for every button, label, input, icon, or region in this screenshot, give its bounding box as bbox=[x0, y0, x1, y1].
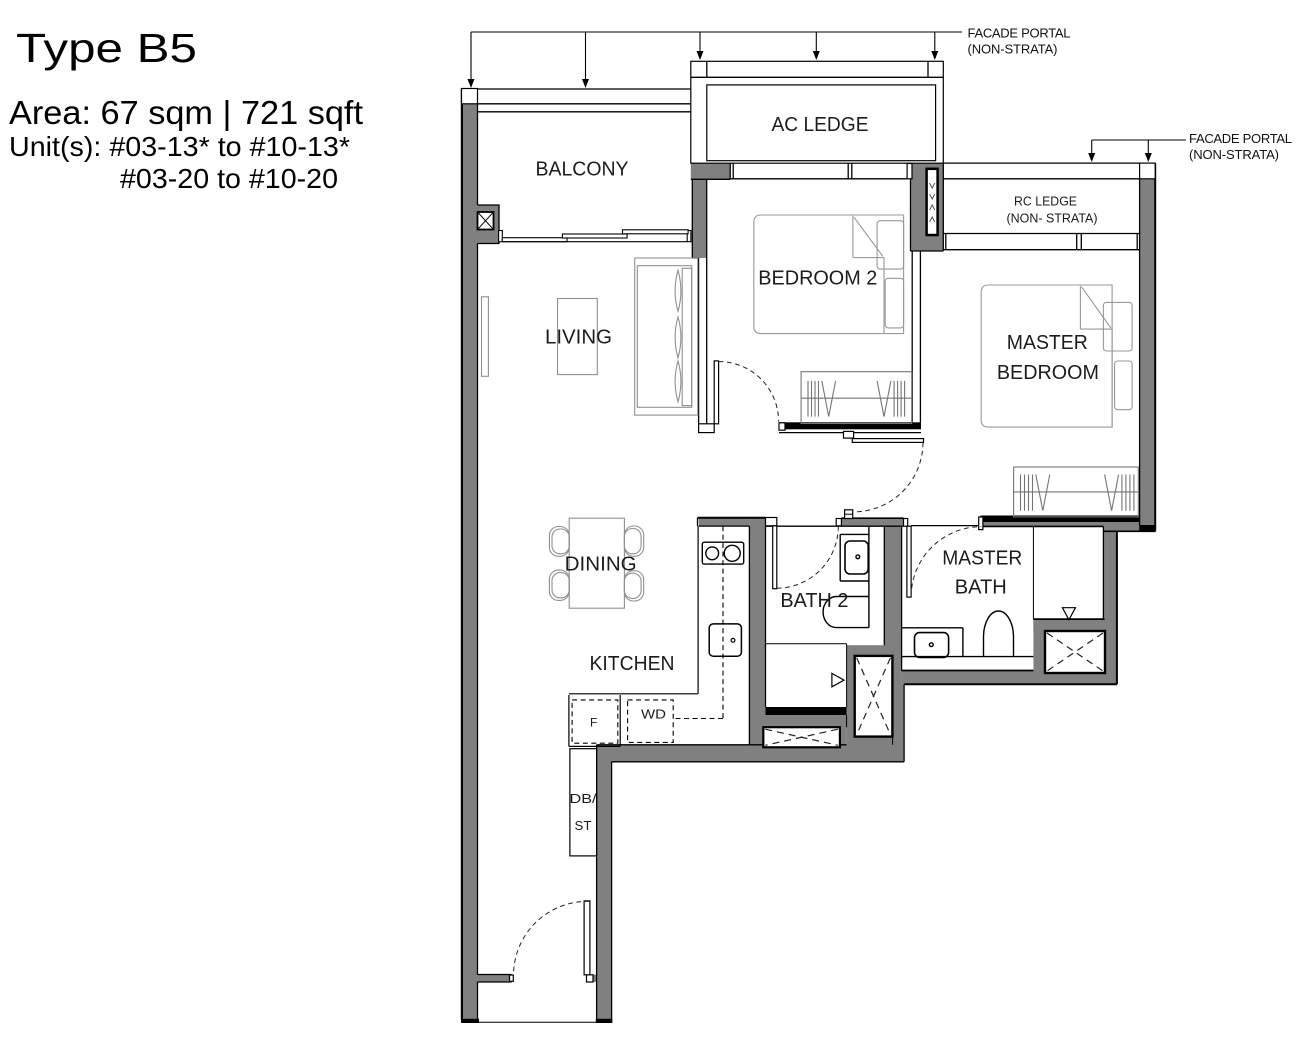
svg-text:(NON- STRATA): (NON- STRATA) bbox=[1007, 212, 1098, 226]
svg-text:DINING: DINING bbox=[565, 554, 637, 576]
svg-text:BEDROOM 2: BEDROOM 2 bbox=[758, 268, 877, 290]
svg-text:RC LEDGE: RC LEDGE bbox=[1014, 195, 1077, 209]
svg-text:BATH 2: BATH 2 bbox=[780, 590, 848, 612]
svg-text:WD: WD bbox=[641, 708, 666, 722]
svg-text:BATH: BATH bbox=[955, 577, 1007, 599]
svg-text:#03-20 to #10-20: #03-20 to #10-20 bbox=[120, 163, 338, 194]
svg-text:DB/: DB/ bbox=[570, 791, 597, 806]
svg-text:BEDROOM: BEDROOM bbox=[997, 362, 1099, 384]
svg-text:Unit(s): #03-13* to #10-13*: Unit(s): #03-13* to #10-13* bbox=[9, 131, 350, 162]
svg-text:BALCONY: BALCONY bbox=[536, 159, 629, 181]
svg-text:AC LEDGE: AC LEDGE bbox=[772, 114, 869, 136]
svg-text:LIVING: LIVING bbox=[545, 327, 612, 349]
svg-text:FACADE PORTAL: FACADE PORTAL bbox=[968, 26, 1071, 41]
svg-text:Area: 67 sqm | 721 sqft: Area: 67 sqm | 721 sqft bbox=[9, 94, 363, 131]
svg-text:(NON-STRATA): (NON-STRATA) bbox=[968, 42, 1058, 57]
svg-text:Type B5: Type B5 bbox=[16, 25, 197, 71]
svg-text:FACADE PORTAL: FACADE PORTAL bbox=[1189, 131, 1292, 146]
svg-text:F: F bbox=[590, 716, 597, 730]
svg-text:MASTER: MASTER bbox=[1007, 332, 1088, 354]
svg-text:KITCHEN: KITCHEN bbox=[590, 653, 675, 675]
svg-text:(NON-STRATA): (NON-STRATA) bbox=[1189, 147, 1279, 162]
svg-text:MASTER: MASTER bbox=[942, 548, 1022, 570]
svg-text:ST: ST bbox=[575, 818, 592, 833]
